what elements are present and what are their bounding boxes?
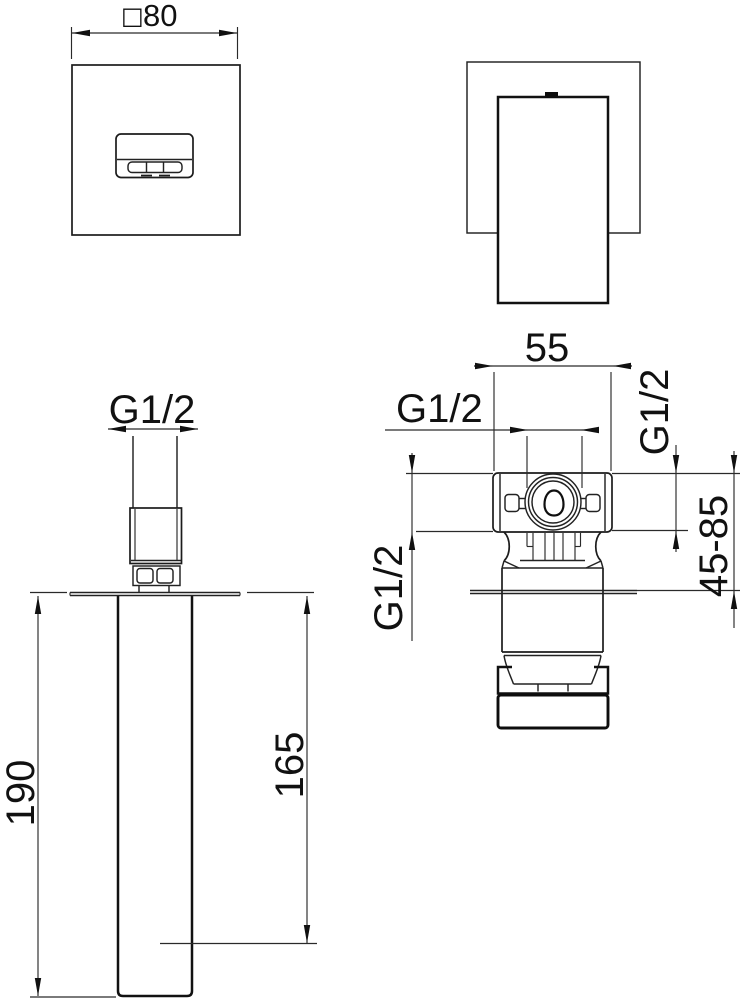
arrowhead-up bbox=[673, 531, 679, 549]
valve-left-thread-label: G1/2 bbox=[367, 545, 411, 632]
dimension-g12-spout: G1/2 bbox=[108, 388, 198, 432]
view-valve-body: 55 G1/2 bbox=[367, 326, 740, 728]
dimension-55: 55 bbox=[474, 326, 632, 471]
arrowhead-left bbox=[613, 363, 631, 369]
arrowhead-down bbox=[304, 925, 310, 943]
arrowhead-right bbox=[219, 30, 237, 36]
arrowhead-down bbox=[409, 455, 415, 473]
square-symbol: □ bbox=[121, 2, 144, 30]
block-body bbox=[130, 508, 182, 564]
arrowhead-up bbox=[304, 596, 310, 614]
hex-nut bbox=[133, 566, 180, 592]
spout-thread-label: G1/2 bbox=[109, 388, 196, 432]
spout-projection-label: 165 bbox=[268, 732, 312, 799]
cartridge-face bbox=[525, 474, 581, 530]
mounting-depth-label: 45-85 bbox=[692, 495, 736, 597]
arrowhead-down bbox=[731, 455, 737, 473]
wall-plate-front bbox=[72, 65, 240, 235]
valve-width-label: 55 bbox=[525, 326, 570, 370]
front-width-label: 80 bbox=[143, 0, 177, 33]
valve-right-thread-label: G1/2 bbox=[633, 369, 677, 456]
view-spout-profile: G1/2 bbox=[0, 388, 317, 997]
inlet-pipe bbox=[133, 436, 177, 508]
spout-tube bbox=[118, 596, 192, 996]
dimension-165: 165 bbox=[160, 596, 317, 944]
arrowhead-right bbox=[475, 363, 493, 369]
dimension-190: 190 bbox=[0, 593, 314, 998]
technical-drawing-canvas: □ 80 G1/2 bbox=[0, 0, 740, 1000]
dimension-g12-left: G1/2 bbox=[367, 453, 493, 641]
dimension-80: □ 80 bbox=[72, 0, 238, 59]
arrowhead-down bbox=[673, 455, 679, 473]
dimension-45-85: 45-85 bbox=[637, 451, 740, 628]
arrowhead-up bbox=[35, 596, 41, 614]
valve-flare bbox=[502, 561, 603, 569]
protection-box bbox=[498, 695, 608, 728]
spout-block-side bbox=[498, 97, 608, 303]
arrowhead-left bbox=[72, 30, 90, 36]
total-projection-label: 190 bbox=[0, 760, 43, 827]
ceiling-plate bbox=[70, 593, 240, 596]
valve-housing bbox=[502, 568, 603, 656]
view-front-plate: □ 80 bbox=[72, 0, 241, 235]
view-side-plate bbox=[467, 62, 640, 303]
valve-waist bbox=[504, 532, 601, 561]
dimension-g12-top: G1/2 bbox=[385, 387, 599, 433]
connector-block bbox=[130, 508, 182, 564]
mounting-bracket bbox=[498, 667, 608, 694]
arrowhead-right bbox=[510, 427, 528, 433]
set-screw-notch bbox=[545, 92, 558, 98]
arrowhead-left bbox=[581, 427, 599, 433]
valve-top-thread-label: G1/2 bbox=[396, 387, 483, 431]
arrowhead-down bbox=[35, 978, 41, 996]
wall-plate-line bbox=[470, 591, 637, 594]
valve-bowl bbox=[504, 656, 601, 692]
